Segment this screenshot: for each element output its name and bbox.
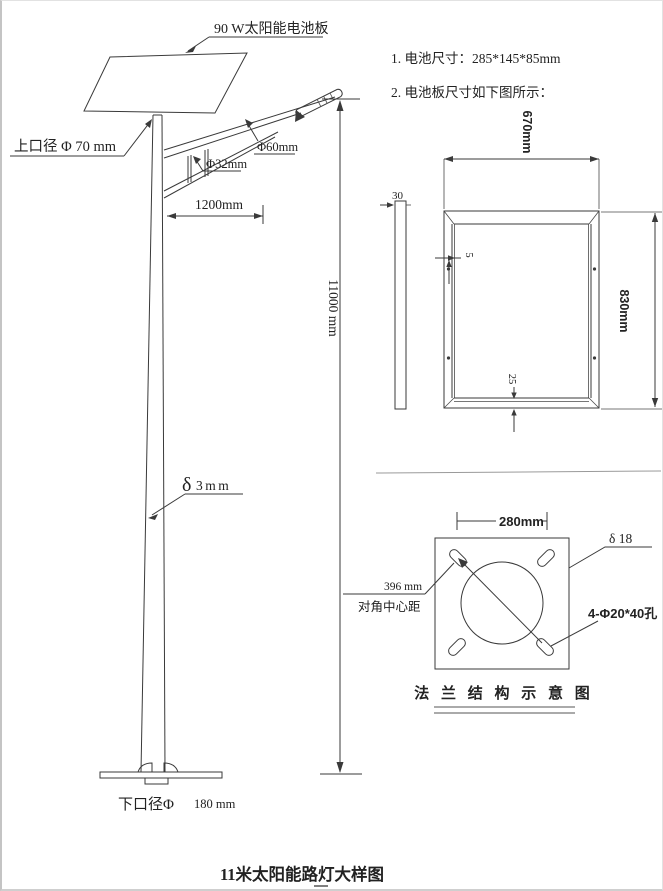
panel-label-leader bbox=[188, 37, 209, 51]
panel-label-arrowhead bbox=[185, 46, 196, 53]
lamp-elevation: 90 W太阳能电池板 下口径Φ 180 mm bbox=[10, 21, 362, 813]
flange-diagonal-caption: 对角中心距 bbox=[358, 599, 421, 614]
panel-front-view bbox=[444, 211, 599, 408]
arm-length-text: 1200mm bbox=[195, 197, 244, 212]
flange-diagonal bbox=[462, 562, 542, 643]
note-1: 1. 电池尺寸：285*145*85mm bbox=[391, 51, 561, 66]
bottom-diameter-value: 180 mm bbox=[194, 797, 236, 811]
panel-width-dimension: 670mm bbox=[444, 110, 599, 209]
flange-drawing: 280mm δ 18 4-Φ20*40孔 396 mm 对角中心距 法 兰 bbox=[343, 512, 657, 713]
lamp-head bbox=[295, 89, 342, 122]
drawing-title: 11米太阳能路灯大样图 bbox=[220, 864, 384, 884]
height-dimension: 11000 mm bbox=[320, 99, 362, 774]
flange-width-dimension: 280mm bbox=[457, 512, 547, 530]
flange-caption: 法 兰 结 构 示 意 图 bbox=[414, 684, 594, 702]
brace-tube-label: Φ32mm bbox=[206, 157, 247, 171]
lamp-head-joint-mark bbox=[295, 110, 305, 122]
panel-width-text: 670mm bbox=[520, 110, 534, 153]
flange-thickness-leader bbox=[569, 547, 652, 568]
panel-height-text: 830mm bbox=[617, 289, 631, 332]
flange-plate bbox=[435, 538, 569, 669]
wall-thickness-label: δ 3mm bbox=[148, 474, 243, 520]
top-diameter-label: 上口径 Φ 70 mm bbox=[14, 138, 117, 155]
panel-thickness-text: 30 bbox=[392, 190, 404, 202]
pole bbox=[141, 115, 165, 772]
panel-frame-bottom-text: 25 bbox=[506, 374, 517, 385]
brace-tube-arrowhead bbox=[193, 156, 201, 164]
solar-panel-shape bbox=[84, 53, 247, 113]
note-2: 2. 电池板尺寸如下图所示： bbox=[391, 85, 553, 100]
panel-dimension-drawing: 30 67 bbox=[380, 110, 662, 432]
panel-frame-side-text: 5 bbox=[463, 252, 474, 257]
section-divider bbox=[376, 471, 661, 473]
flange-diagonal-distance-label: 396 mm 对角中心距 bbox=[343, 563, 454, 614]
drawing-canvas: 90 W太阳能电池板 下口径Φ 180 mm bbox=[2, 1, 663, 891]
wall-thickness-value: 3mm bbox=[196, 478, 231, 493]
arm-tube-arrowhead bbox=[245, 119, 253, 128]
panel-side-view bbox=[395, 201, 406, 409]
wall-thickness-delta: δ bbox=[182, 474, 191, 496]
arm-length-dimension: 1200mm bbox=[167, 197, 263, 224]
flange-width-text: 280mm bbox=[499, 514, 544, 529]
arm-tube-leader bbox=[248, 124, 258, 141]
panel-height-dimension: 830mm bbox=[601, 212, 662, 409]
top-diameter-leader bbox=[124, 122, 150, 156]
height-text: 11000 mm bbox=[326, 279, 341, 337]
notes: 1. 电池尺寸：285*145*85mm 2. 电池板尺寸如下图所示： bbox=[391, 51, 561, 100]
base-plate bbox=[100, 763, 222, 784]
flange-thickness-text: δ 18 bbox=[609, 531, 632, 546]
panel-thickness-arrowhead bbox=[387, 202, 394, 207]
drawing-sheet: 90 W太阳能电池板 下口径Φ 180 mm bbox=[0, 0, 663, 891]
panel-label: 90 W太阳能电池板 bbox=[214, 21, 328, 37]
flange-diagonal-value: 396 mm bbox=[384, 581, 422, 593]
arm-tube-label: Φ60mm bbox=[257, 140, 298, 154]
flange-holes-text: 4-Φ20*40孔 bbox=[588, 606, 657, 621]
flange-holes-leader bbox=[551, 621, 598, 646]
panel-frame-bottom-dimension: 25 bbox=[506, 374, 517, 432]
bottom-diameter-label: 下口径Φ bbox=[118, 796, 174, 813]
